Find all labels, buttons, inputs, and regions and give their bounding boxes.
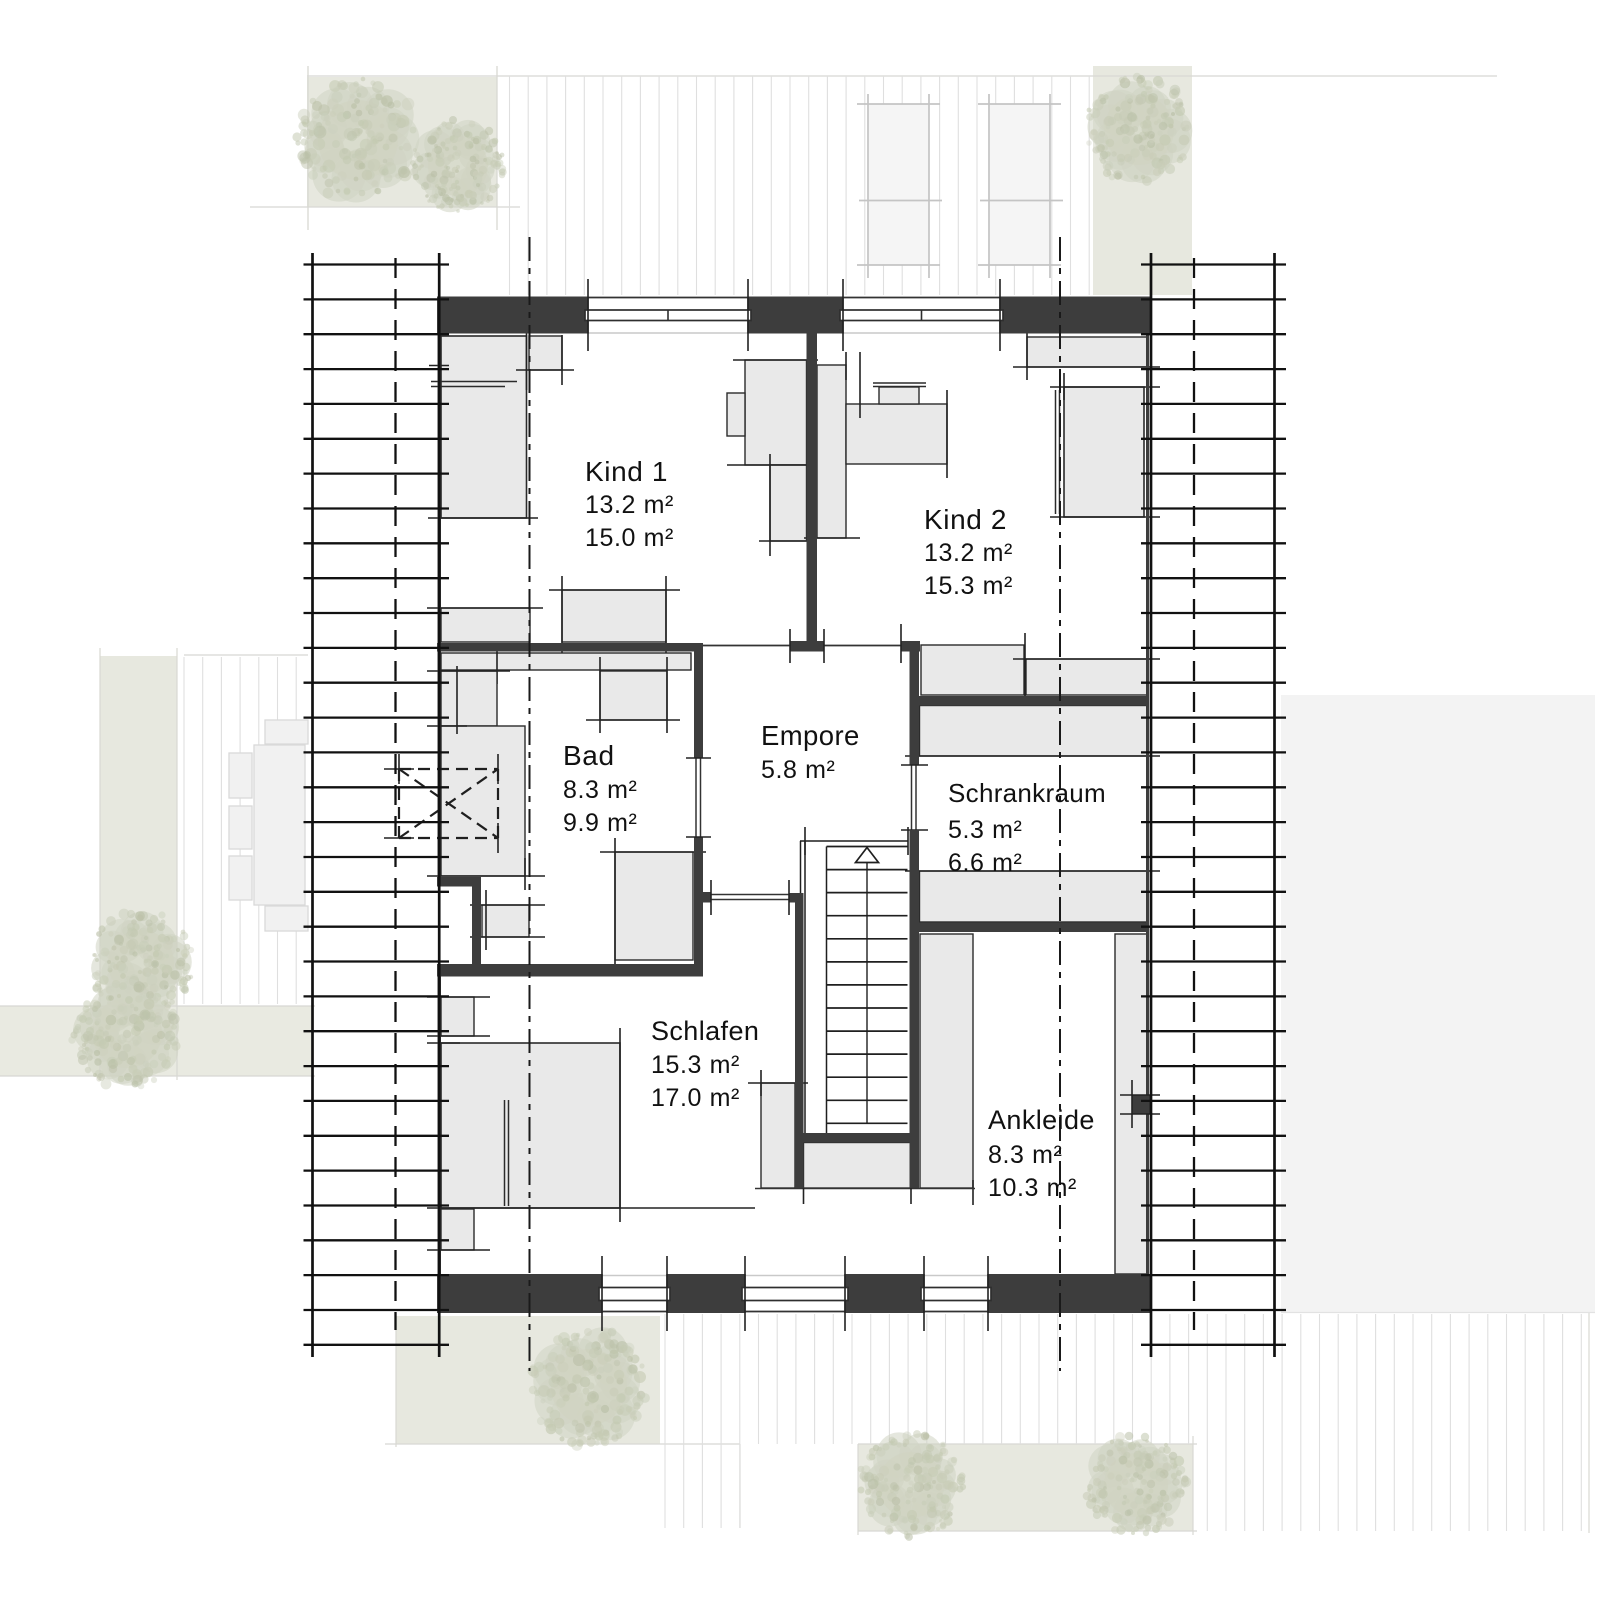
svg-text:8.3 m²: 8.3 m² xyxy=(988,1141,1062,1169)
svg-text:9.9 m²: 9.9 m² xyxy=(563,809,637,837)
svg-text:Schlafen: Schlafen xyxy=(651,1016,759,1046)
svg-text:13.2 m²: 13.2 m² xyxy=(924,539,1013,567)
svg-text:13.2 m²: 13.2 m² xyxy=(585,491,674,519)
svg-text:5.8 m²: 5.8 m² xyxy=(761,756,835,784)
svg-text:15.0 m²: 15.0 m² xyxy=(585,524,674,552)
svg-text:15.3 m²: 15.3 m² xyxy=(651,1051,740,1079)
svg-text:17.0 m²: 17.0 m² xyxy=(651,1084,740,1112)
svg-text:Ankleide: Ankleide xyxy=(988,1105,1095,1135)
svg-text:8.3 m²: 8.3 m² xyxy=(563,776,637,804)
svg-text:Schrankraum: Schrankraum xyxy=(948,778,1106,808)
svg-text:15.3 m²: 15.3 m² xyxy=(924,572,1013,600)
svg-text:Bad: Bad xyxy=(563,740,615,771)
svg-text:6.6 m²: 6.6 m² xyxy=(948,849,1022,877)
svg-text:10.3 m²: 10.3 m² xyxy=(988,1174,1077,1202)
svg-text:Kind 2: Kind 2 xyxy=(924,504,1007,535)
svg-text:5.3 m²: 5.3 m² xyxy=(948,816,1022,844)
svg-text:Kind 1: Kind 1 xyxy=(585,456,668,487)
svg-text:Empore: Empore xyxy=(761,720,860,751)
